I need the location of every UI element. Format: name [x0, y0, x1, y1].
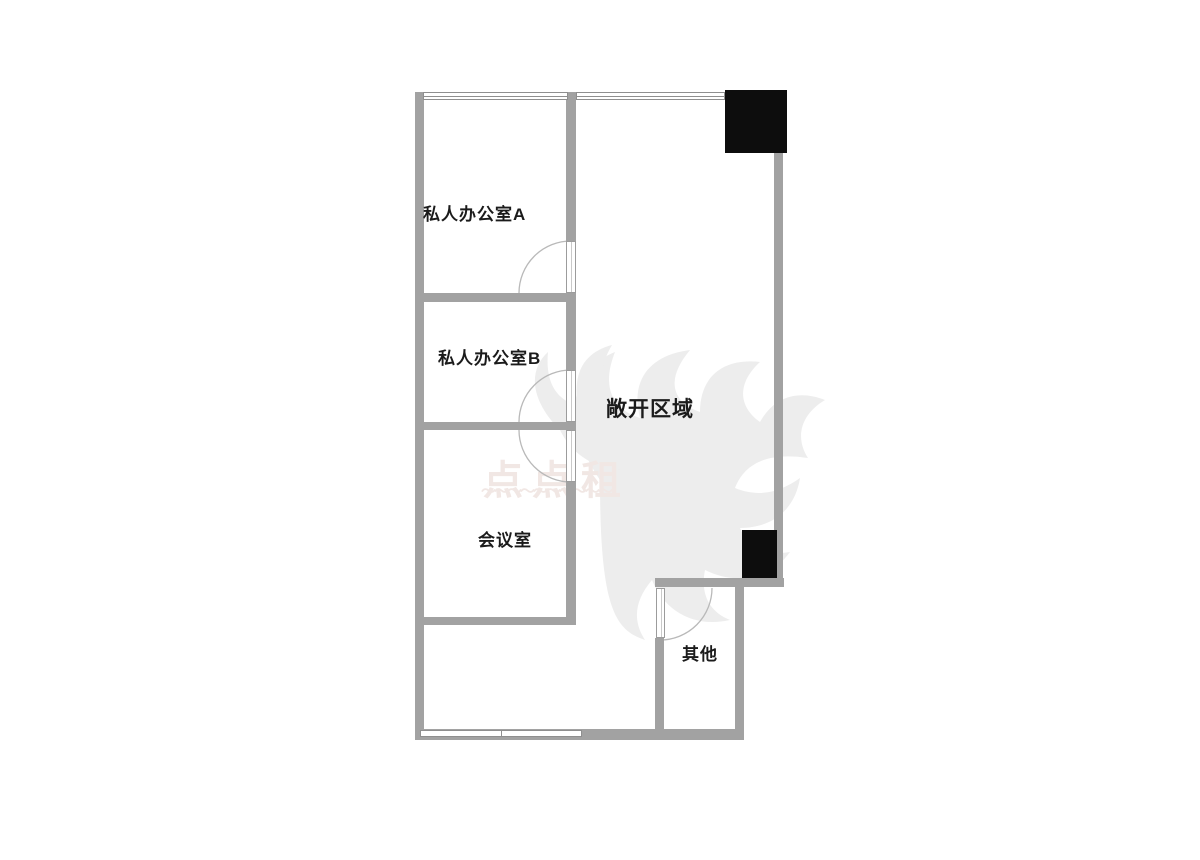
wall-left-exterior: [415, 92, 424, 740]
wall-other-right: [735, 587, 744, 740]
label-private-office-b: 私人办公室B: [438, 344, 541, 369]
structural-column-middle: [742, 530, 777, 578]
wall-meeting-bottom: [415, 617, 573, 625]
label-private-office-a: 私人办公室A: [423, 200, 526, 225]
wall-offices-vertical-middle: [566, 293, 576, 370]
label-meeting-room: 会议室: [478, 526, 532, 551]
wall-divider-office-b-meeting: [415, 422, 576, 430]
structural-column-top: [725, 90, 787, 153]
window-bottom-pane-left: [421, 731, 502, 736]
label-other: 其他: [682, 640, 718, 665]
wall-right-exterior: [774, 152, 783, 587]
wall-offices-vertical-upper: [566, 100, 576, 241]
door-arc-office-a: [519, 241, 571, 293]
floor-plan: 点点租 〜〜〜〜〜〜〜〜〜〜 私人办公室A 私人办公室B 敞开区域 会议室 其他: [0, 0, 1200, 860]
door-meeting-room: [566, 430, 576, 482]
door-other-room: [656, 588, 665, 638]
wall-other-left: [655, 638, 664, 737]
window-bottom-pane-right: [502, 731, 582, 736]
wall-other-top: [655, 578, 784, 587]
window-top-right: [576, 92, 725, 100]
wall-divider-office-a-b: [415, 293, 576, 302]
door-arc-meeting: [519, 430, 571, 482]
label-open-area: 敞开区域: [606, 393, 694, 423]
door-arc-other: [660, 588, 712, 640]
wall-offices-vertical-lower: [566, 482, 576, 625]
door-office-a: [566, 241, 576, 293]
door-arc-office-b: [519, 370, 571, 422]
window-bottom: [420, 730, 582, 737]
window-top-left: [423, 92, 568, 100]
door-office-b: [566, 370, 576, 422]
